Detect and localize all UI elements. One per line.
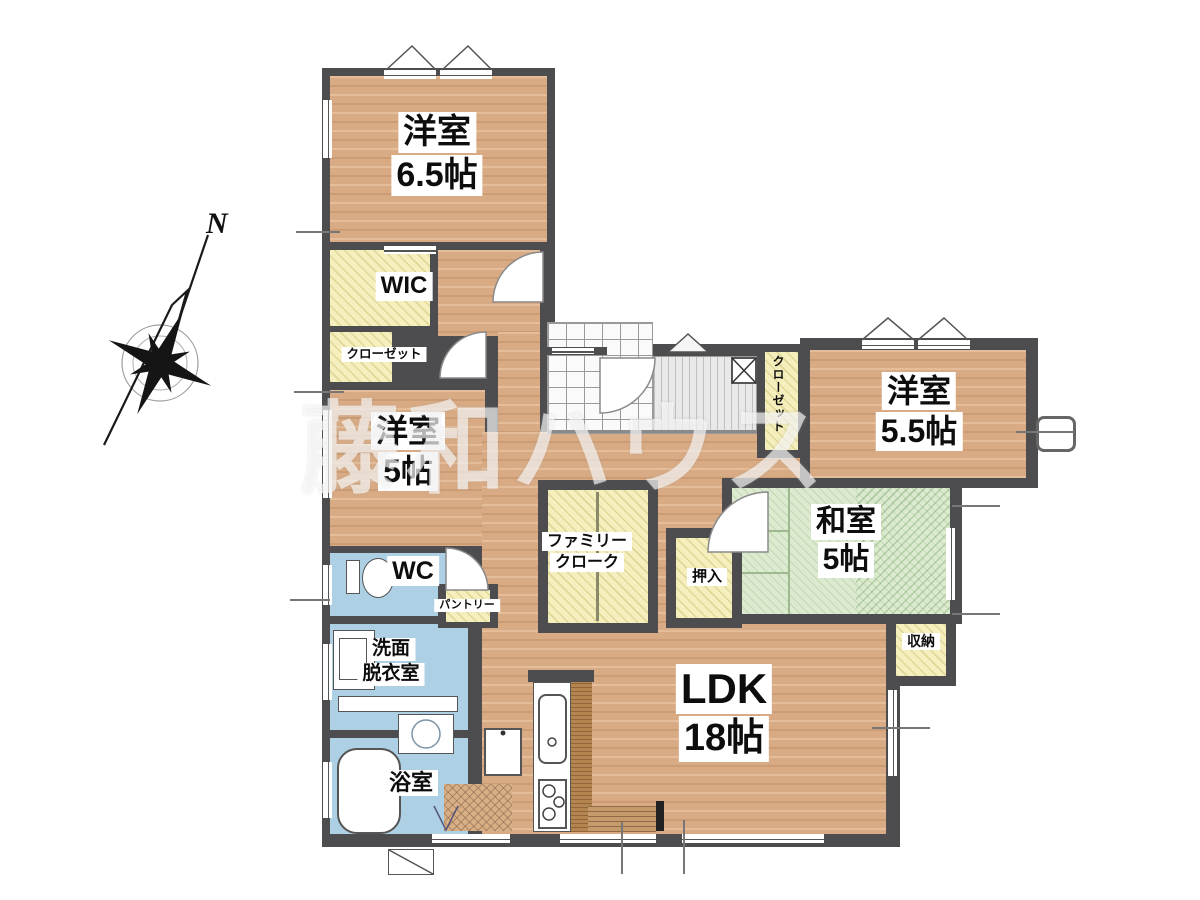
room-label-pantry: パントリー [434, 599, 500, 612]
compass-icon: N [88, 205, 258, 455]
window-65-west [323, 100, 332, 158]
room-label-bath: 浴室 [384, 770, 438, 796]
room-label-oshiire: 押入 [687, 568, 727, 586]
corridor-upper-floor [438, 250, 540, 336]
stove-icon [538, 779, 567, 829]
room-label-closet-left: クローゼット [341, 347, 426, 362]
doma-hatch-area [444, 784, 512, 831]
compass-north-label: N [205, 207, 229, 240]
water-heater-icon [388, 849, 434, 875]
wic-sliding-door [384, 246, 436, 254]
window-bath-west [323, 762, 332, 818]
window-senmen-west [323, 644, 332, 700]
room-shuno-floor [896, 624, 946, 676]
floorplan-canvas: N 洋室 6.5帖 WIC クローゼット 洋室 5帖 WC 洗面 脱衣室 浴室 … [0, 0, 1200, 900]
window-ldk-south-2 [560, 834, 656, 843]
wall-genkan-north [653, 344, 760, 356]
watermark-text: 藤和ハウス [290, 382, 840, 522]
window-55-top-1 [862, 340, 914, 349]
room-label-wc: WC [387, 556, 439, 586]
casement-mark-55-2 [918, 318, 968, 340]
window-55-top-2 [918, 340, 970, 349]
casement-mark-55-1 [862, 318, 914, 340]
room-label-ldk: LDK 18帖 [676, 664, 772, 762]
window-65-top-1 [384, 70, 436, 79]
window-wc-west [323, 565, 332, 605]
deck-post [656, 801, 664, 831]
casement-mark-65-2 [442, 46, 492, 70]
wood-deck-step [588, 806, 656, 832]
window-ldk-east [888, 690, 897, 776]
room-label-wic: WIC [376, 272, 433, 301]
room-label-shuno: 収納 [902, 633, 940, 650]
casement-mark-65-1 [386, 46, 436, 70]
laundry-counter [338, 696, 458, 712]
compass-star [109, 312, 211, 414]
kitchen-sink-icon [538, 694, 567, 764]
window-washitsu-east [946, 528, 955, 600]
room-label-western-6-5: 洋室 6.5帖 [391, 112, 482, 196]
washer-icon [398, 714, 454, 754]
room-label-familycloak: ファミリー クローク [542, 532, 632, 572]
room-label-western-5-5: 洋室 5.5帖 [876, 372, 963, 451]
window-ldk-south-3 [682, 834, 824, 843]
shoe-cabinet-icon [731, 357, 757, 384]
room-label-senmen: 洗面 脱衣室 [357, 638, 424, 686]
window-65-top-2 [440, 70, 492, 79]
ac-unit-icon [1036, 416, 1076, 452]
window-ldk-south-1 [432, 834, 510, 843]
fridge-icon [484, 728, 522, 776]
toilet-icon [346, 560, 360, 594]
kitchen-cap-wall [528, 670, 594, 682]
porch-window [552, 348, 594, 354]
